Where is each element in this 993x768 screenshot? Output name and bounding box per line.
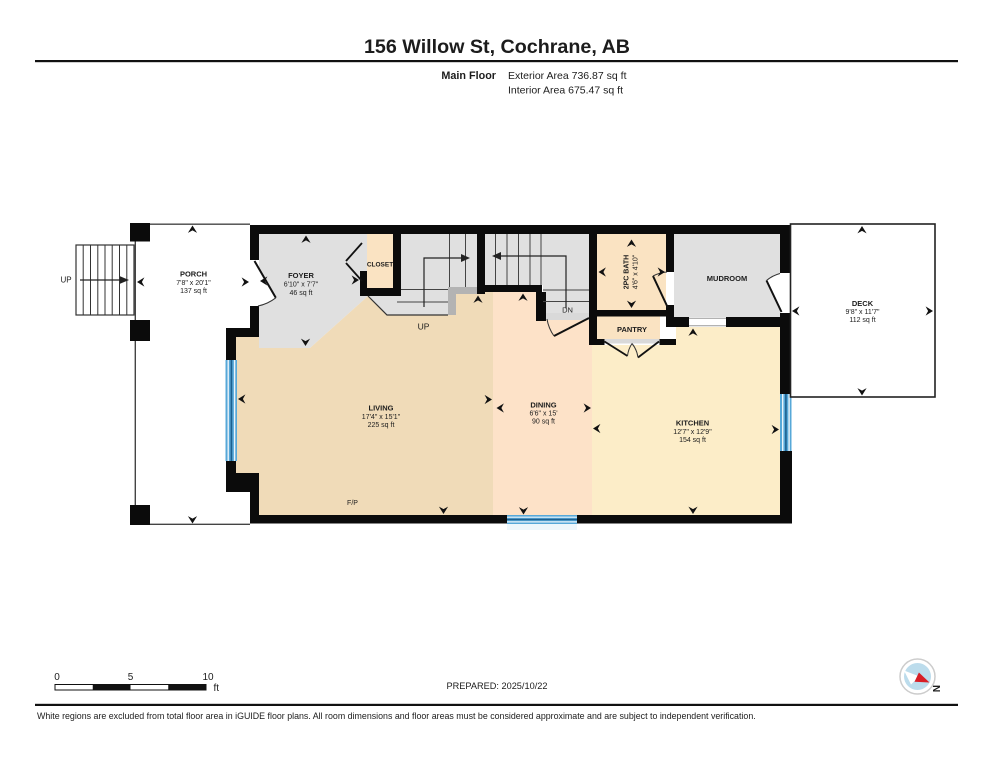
svg-text:6'10" x 7'7": 6'10" x 7'7": [284, 282, 319, 289]
svg-text:KITCHEN: KITCHEN: [676, 419, 709, 428]
svg-text:17'4" x 15'1": 17'4" x 15'1": [362, 414, 401, 421]
svg-text:DECK: DECK: [852, 299, 874, 308]
svg-text:5: 5: [128, 672, 134, 683]
svg-text:0: 0: [54, 672, 60, 683]
svg-text:137 sq ft: 137 sq ft: [180, 288, 207, 295]
svg-text:154 sq ft: 154 sq ft: [679, 437, 706, 444]
svg-text:MUDROOM: MUDROOM: [707, 274, 747, 283]
svg-text:UP: UP: [60, 276, 71, 285]
svg-text:6'6" x 15': 6'6" x 15': [529, 410, 557, 417]
svg-text:225 sq ft: 225 sq ft: [368, 422, 395, 429]
svg-text:7'8" x 20'1": 7'8" x 20'1": [176, 280, 211, 287]
svg-text:UP: UP: [418, 322, 430, 332]
svg-text:DINING: DINING: [530, 401, 556, 410]
svg-text:2PC BATH: 2PC BATH: [624, 255, 631, 289]
svg-text:LIVING: LIVING: [368, 404, 393, 413]
svg-text:112 sq ft: 112 sq ft: [849, 317, 875, 324]
svg-text:N: N: [930, 685, 941, 692]
svg-text:9'8" x 11'7": 9'8" x 11'7": [846, 309, 880, 316]
svg-text:PREPARED: 2025/10/22: PREPARED: 2025/10/22: [447, 681, 548, 691]
svg-text:Exterior Area 736.87 sq ft: Exterior Area 736.87 sq ft: [508, 70, 627, 82]
svg-text:FOYER: FOYER: [288, 271, 314, 280]
svg-text:ft: ft: [214, 683, 220, 694]
svg-text:CLOSET: CLOSET: [367, 262, 393, 269]
svg-text:90 sq ft: 90 sq ft: [532, 418, 555, 425]
svg-text:12'7" x 12'9": 12'7" x 12'9": [673, 429, 712, 436]
svg-text:10: 10: [202, 672, 214, 683]
svg-text:F/P: F/P: [347, 500, 358, 507]
svg-text:Interior Area 675.47 sq ft: Interior Area 675.47 sq ft: [508, 85, 623, 97]
svg-text:White regions are excluded fro: White regions are excluded from total fl…: [37, 711, 756, 721]
svg-text:46 sq ft: 46 sq ft: [290, 290, 313, 297]
svg-text:Main Floor: Main Floor: [441, 70, 496, 82]
svg-text:PORCH: PORCH: [180, 270, 207, 279]
svg-text:PANTRY: PANTRY: [617, 325, 647, 334]
svg-text:4'6" x 4'10": 4'6" x 4'10": [633, 254, 640, 289]
svg-text:156 Willow St, Cochrane, AB: 156 Willow St, Cochrane, AB: [364, 36, 630, 58]
